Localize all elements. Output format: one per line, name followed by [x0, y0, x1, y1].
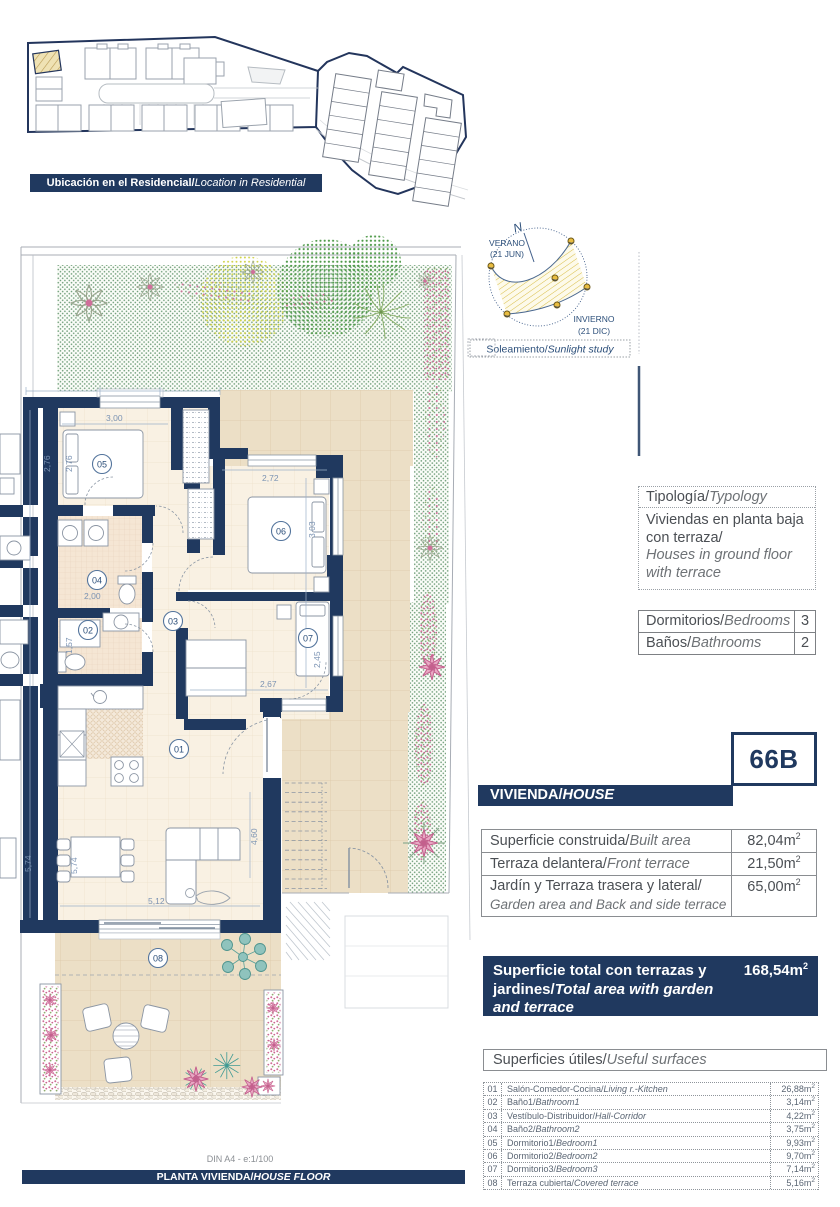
svg-text:5,12: 5,12 — [148, 896, 165, 906]
svg-text:03: 03 — [168, 617, 178, 627]
svg-text:2,72: 2,72 — [262, 473, 279, 483]
svg-text:04: 04 — [92, 576, 102, 586]
svg-text:07: 07 — [303, 634, 313, 644]
svg-text:(21 JUN): (21 JUN) — [490, 249, 524, 259]
svg-text:4,60: 4,60 — [249, 828, 259, 845]
svg-text:Soleamiento/Sunlight study: Soleamiento/Sunlight study — [486, 344, 614, 356]
svg-text:02: 02 — [83, 626, 93, 636]
svg-text:05: 05 — [97, 460, 107, 470]
svg-text:INVIERNO: INVIERNO — [573, 314, 614, 324]
svg-text:2,00: 2,00 — [84, 591, 101, 601]
svg-text:2,76: 2,76 — [64, 455, 74, 472]
svg-text:VERANO: VERANO — [489, 238, 525, 248]
svg-text:5,74: 5,74 — [69, 857, 79, 874]
svg-text:(21 DIC): (21 DIC) — [578, 326, 610, 336]
svg-text:01: 01 — [174, 745, 184, 755]
svg-text:08: 08 — [153, 954, 163, 964]
svg-text:2,45: 2,45 — [312, 651, 322, 668]
svg-text:5,74: 5,74 — [23, 855, 33, 872]
svg-text:06: 06 — [276, 527, 286, 537]
svg-text:N: N — [511, 219, 524, 235]
svg-text:3,00: 3,00 — [106, 413, 123, 423]
svg-text:1,57: 1,57 — [64, 637, 74, 654]
svg-text:3,03: 3,03 — [307, 521, 317, 538]
svg-text:2,67: 2,67 — [260, 679, 277, 689]
svg-text:2,76: 2,76 — [42, 455, 52, 472]
